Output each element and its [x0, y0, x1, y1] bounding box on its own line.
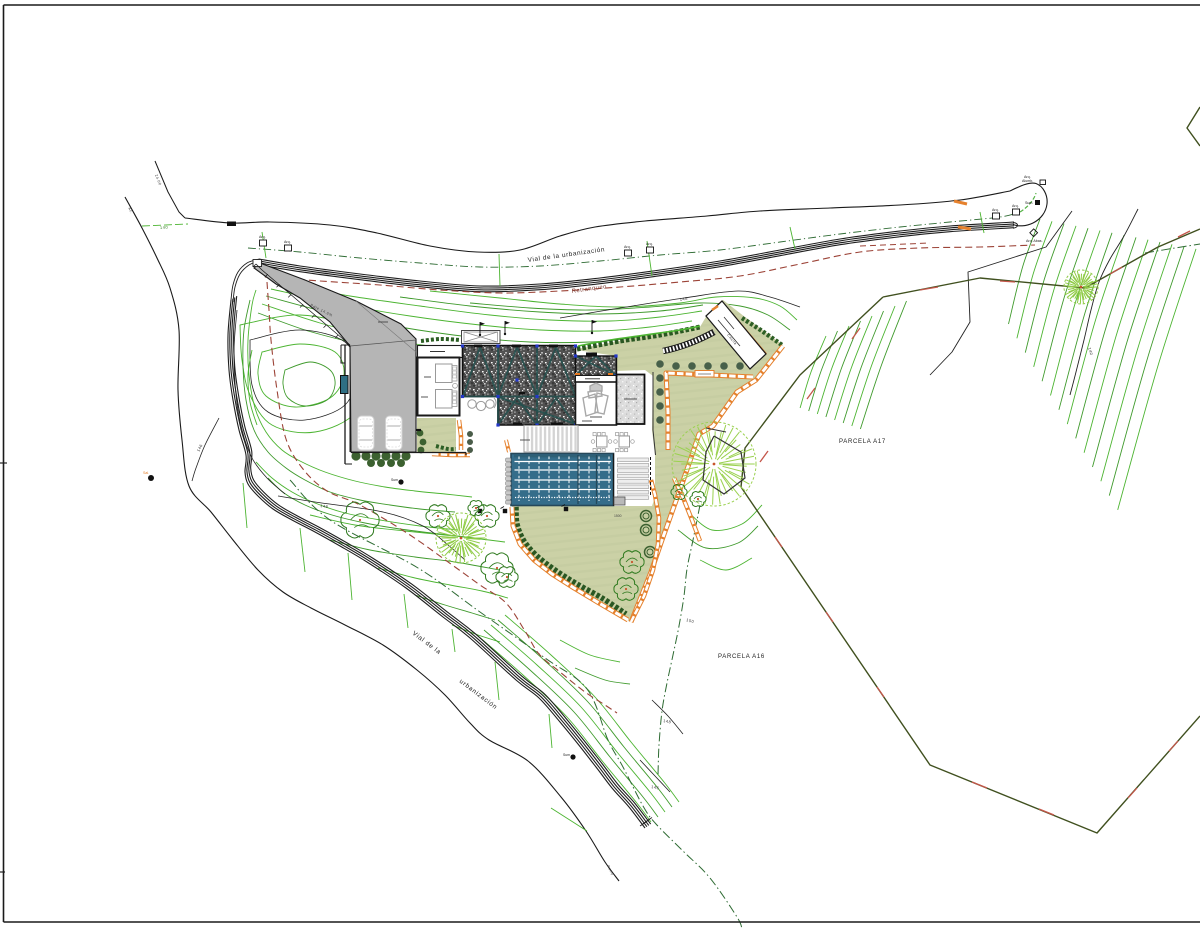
- svg-text:Alumb.: Alumb.: [1022, 179, 1033, 183]
- svg-text:Arq.: Arq.: [646, 242, 653, 246]
- svg-text:Sal.: Sal.: [143, 471, 149, 475]
- svg-text:Arq.: Arq.: [259, 235, 266, 239]
- svg-text:Sum: Sum: [563, 753, 570, 757]
- svg-text:Arq.: Arq.: [992, 208, 999, 212]
- svg-text:140: 140: [160, 225, 169, 230]
- svg-text:Sum: Sum: [391, 478, 398, 482]
- svg-text:1500: 1500: [614, 514, 622, 518]
- svg-text:Arq.: Arq.: [624, 245, 631, 249]
- svg-text:PARCELA A16: PARCELA A16: [718, 654, 765, 660]
- svg-text:PARCELA A17: PARCELA A17: [839, 439, 886, 445]
- svg-text:Arq. Abas.: Arq. Abas.: [1026, 239, 1043, 243]
- svg-text:Sum.: Sum.: [1025, 201, 1033, 205]
- svg-text:Arq.: Arq.: [284, 240, 291, 244]
- svg-text:Arq.: Arq.: [1012, 204, 1019, 208]
